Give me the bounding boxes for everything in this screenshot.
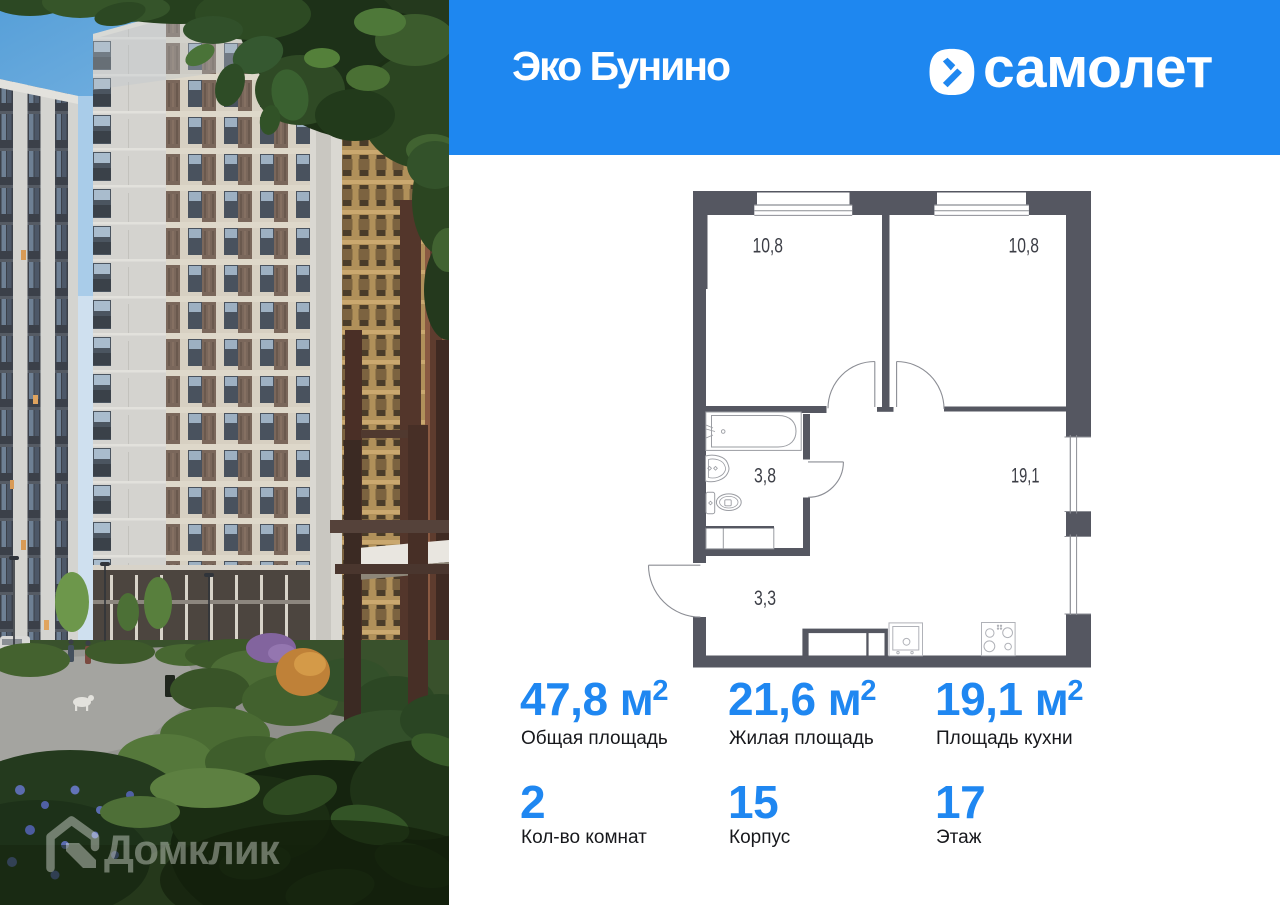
svg-text:10,8: 10,8 bbox=[753, 234, 784, 258]
svg-text:3,8: 3,8 bbox=[754, 464, 776, 488]
svg-text:10,8: 10,8 bbox=[1009, 234, 1040, 258]
svg-text:3,3: 3,3 bbox=[754, 586, 776, 610]
svg-text:19,1: 19,1 bbox=[1011, 464, 1040, 488]
svg-text:Домклик: Домклик bbox=[104, 826, 281, 873]
